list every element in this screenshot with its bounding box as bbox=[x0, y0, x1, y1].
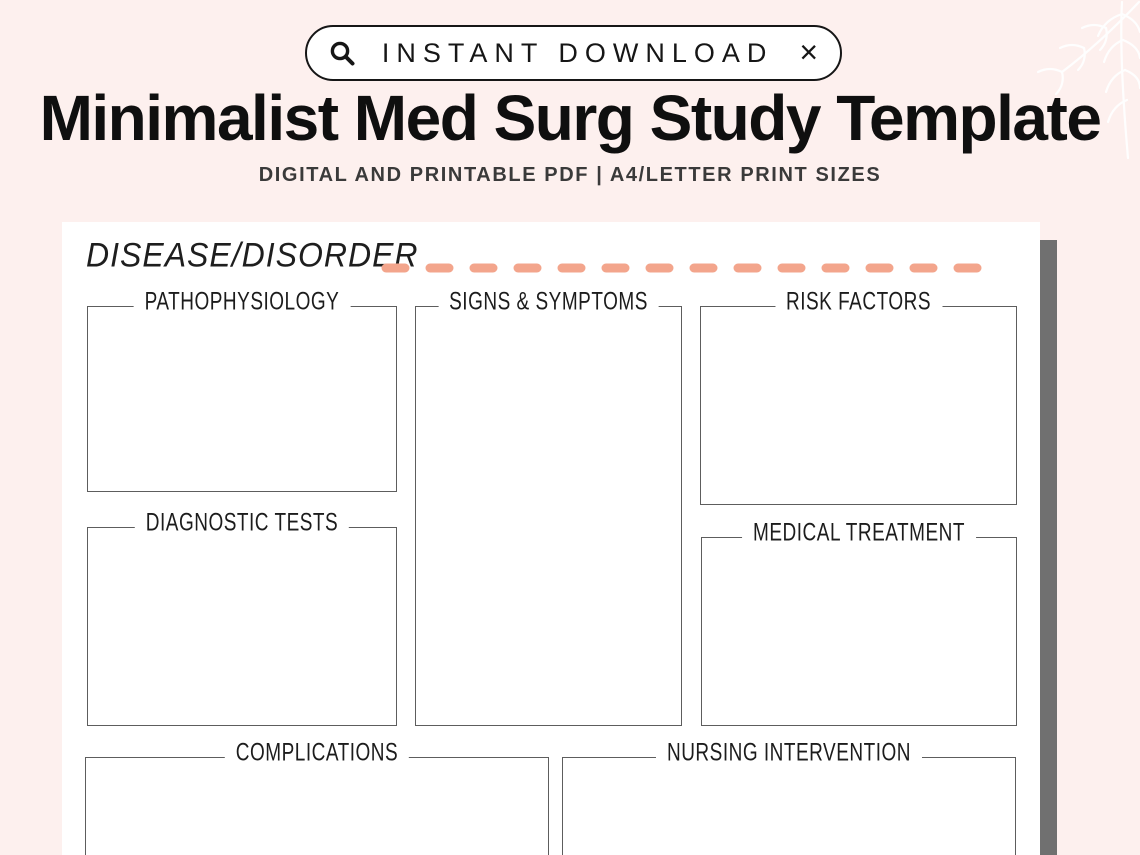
page-subtitle: DIGITAL AND PRINTABLE PDF | A4/LETTER PR… bbox=[0, 164, 1140, 187]
section-label-diagnostic-tests: DIAGNOSTIC TESTS bbox=[135, 510, 349, 540]
section-box-medical-treatment: MEDICAL TREATMENT bbox=[701, 537, 1017, 726]
section-box-pathophysiology: PATHOPHYSIOLOGY bbox=[87, 306, 397, 492]
section-label-pathophysiology: PATHOPHYSIOLOGY bbox=[134, 289, 351, 319]
worksheet-heading: DISEASE/DISORDER bbox=[86, 235, 419, 275]
section-box-complications: COMPLICATIONS bbox=[85, 757, 549, 855]
worksheet-paper: DISEASE/DISORDER PATHOPHYSIOLOGY SIGNS &… bbox=[62, 222, 1040, 855]
section-label-risk-factors: RISK FACTORS bbox=[775, 289, 942, 319]
paper-shadow bbox=[1040, 240, 1057, 855]
badge-label: INSTANT DOWNLOAD bbox=[356, 38, 799, 69]
section-box-nursing-intervention: NURSING INTERVENTION bbox=[562, 757, 1016, 855]
section-box-signs-symptoms: SIGNS & SYMPTOMS bbox=[415, 306, 682, 726]
close-icon[interactable]: × bbox=[799, 36, 818, 68]
page-title: Minimalist Med Surg Study Template bbox=[0, 86, 1140, 150]
section-label-medical-treatment: MEDICAL TREATMENT bbox=[742, 520, 976, 550]
section-label-nursing-intervention: NURSING INTERVENTION bbox=[656, 740, 922, 770]
search-icon[interactable] bbox=[329, 40, 356, 67]
dashed-divider bbox=[380, 263, 1000, 273]
section-label-complications: COMPLICATIONS bbox=[225, 740, 409, 770]
section-box-risk-factors: RISK FACTORS bbox=[700, 306, 1017, 505]
section-box-diagnostic-tests: DIAGNOSTIC TESTS bbox=[87, 527, 397, 726]
section-label-signs-symptoms: SIGNS & SYMPTOMS bbox=[438, 289, 659, 319]
instant-download-badge[interactable]: INSTANT DOWNLOAD × bbox=[305, 25, 842, 81]
